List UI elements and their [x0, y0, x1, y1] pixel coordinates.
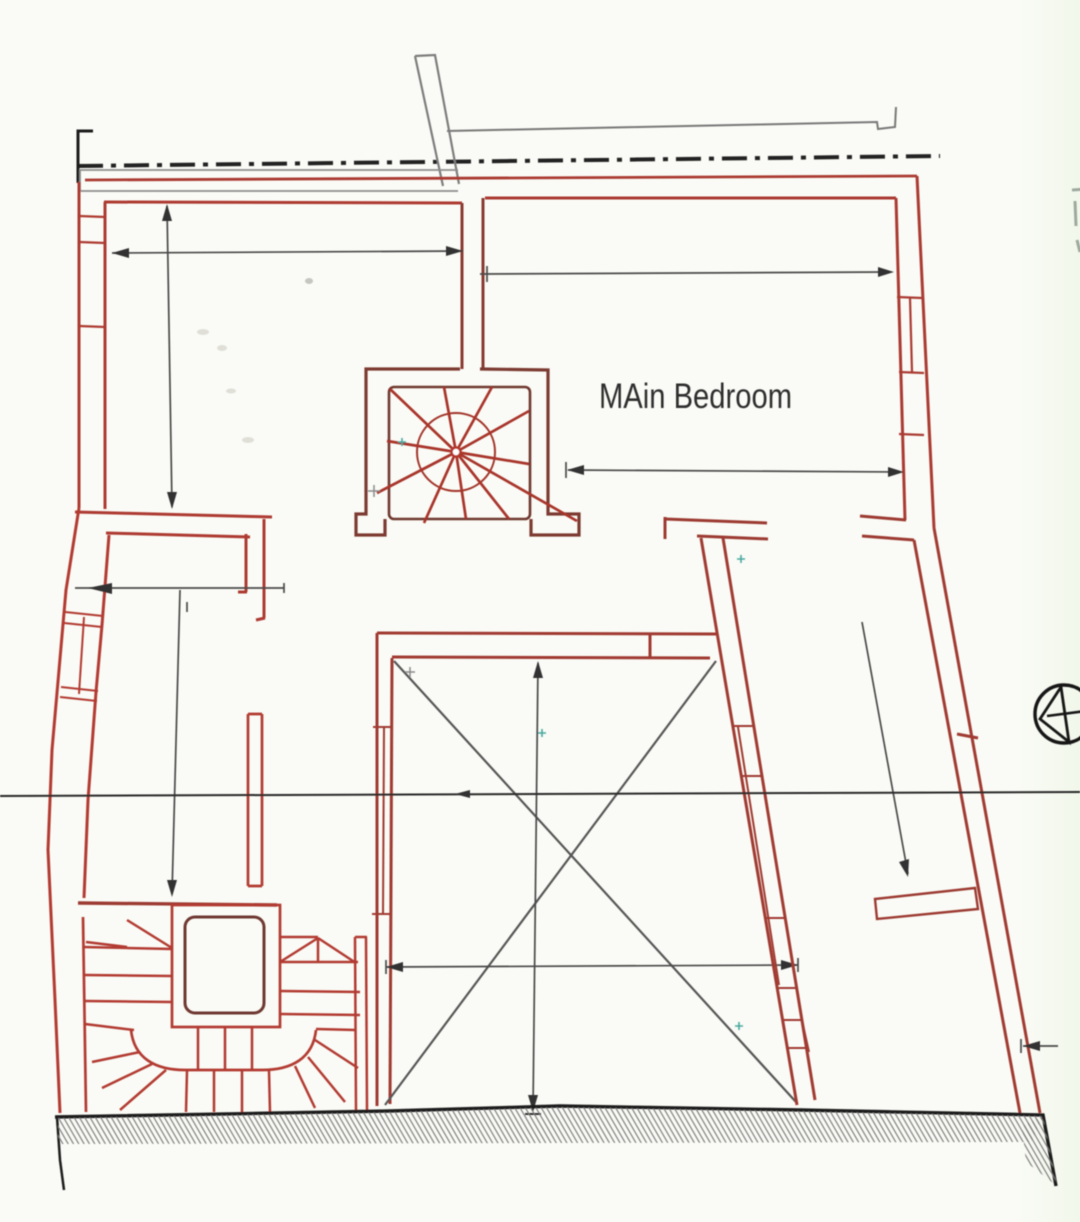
svg-text:MAin Bedroom: MAin Bedroom	[599, 377, 792, 416]
